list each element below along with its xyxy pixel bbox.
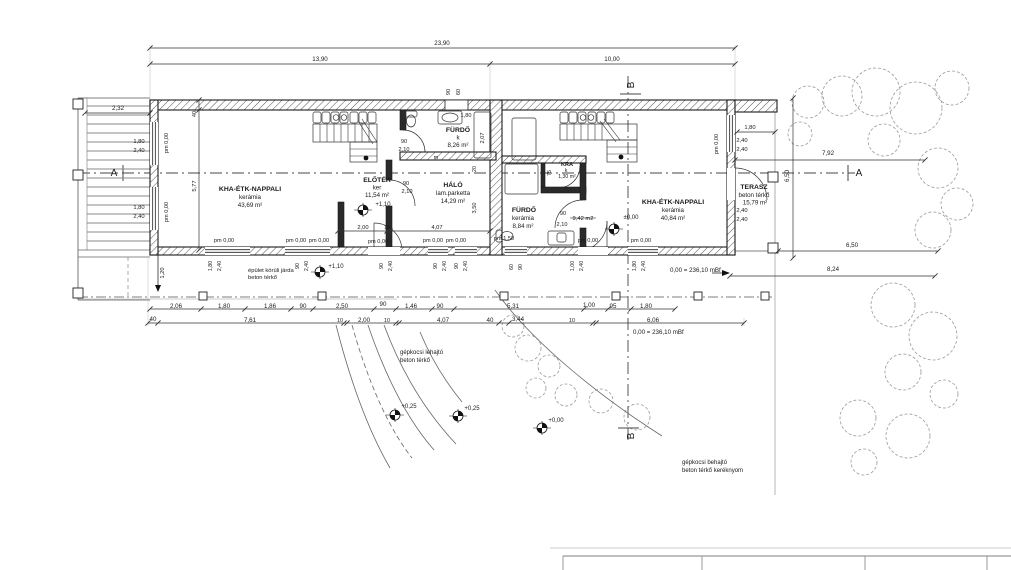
annotation-text: 40 bbox=[192, 111, 198, 117]
annotation-text: 13,90 bbox=[312, 56, 328, 63]
level-marker bbox=[358, 210, 363, 215]
window-opening bbox=[150, 122, 158, 165]
annotation-text: 10 bbox=[384, 318, 390, 324]
tree bbox=[526, 378, 546, 398]
annotation-text: 2,32 bbox=[112, 105, 125, 112]
annotation-text: 15,79 m² bbox=[743, 200, 767, 207]
tree bbox=[941, 188, 973, 220]
annotation-text: 2,10 bbox=[557, 222, 568, 228]
level-marker bbox=[609, 229, 614, 234]
post-square bbox=[768, 172, 778, 182]
fixture bbox=[331, 112, 339, 123]
annotation-text: 90 bbox=[437, 303, 444, 310]
fixture bbox=[578, 112, 586, 123]
annotation-text: 40 bbox=[150, 316, 157, 323]
annotation-text: 4,07 bbox=[437, 317, 450, 324]
stair-flight bbox=[313, 124, 377, 142]
tree bbox=[886, 414, 930, 458]
section-marker-a-right: A bbox=[856, 168, 863, 179]
annotation-text: 2,40 bbox=[736, 208, 747, 214]
room-label-nappali-1: KHA-ÉTK-NAPPALI bbox=[219, 184, 281, 193]
section-marker-b-top: B bbox=[626, 81, 637, 88]
post-square bbox=[73, 288, 83, 298]
stair-start-dot bbox=[364, 156, 369, 161]
annotation-text: k bbox=[456, 135, 460, 142]
annotation-text: 8,84 m² bbox=[513, 223, 534, 230]
annotation-text: 1,80 bbox=[133, 205, 144, 211]
annotation-text: 90 bbox=[454, 263, 460, 269]
tree bbox=[555, 384, 577, 406]
fixture bbox=[442, 113, 458, 122]
annotation-text: 75 bbox=[547, 170, 553, 176]
post-square bbox=[73, 170, 83, 180]
tree bbox=[822, 76, 862, 116]
annotation-text: 90 bbox=[300, 303, 307, 310]
annotation-text: 2,40 bbox=[736, 138, 747, 144]
annotation-text: 9,42 m2 bbox=[573, 216, 594, 222]
annotation-text: 2,40 bbox=[736, 147, 747, 153]
wall bbox=[735, 100, 777, 112]
tree bbox=[792, 86, 824, 118]
tree bbox=[538, 355, 560, 377]
annotation-text: 3,50 bbox=[472, 203, 478, 214]
annotation-text: 95 bbox=[610, 303, 617, 310]
annotation-text: pm 1,50 bbox=[494, 236, 514, 242]
fixture bbox=[606, 112, 614, 123]
window-opening bbox=[727, 115, 735, 152]
tree bbox=[890, 82, 942, 134]
window-opening bbox=[428, 247, 448, 255]
annotation-text: 4,07 bbox=[431, 225, 442, 231]
annotation-text: 90 bbox=[518, 264, 524, 270]
level-marker bbox=[458, 411, 463, 416]
wall bbox=[150, 100, 735, 110]
fixture bbox=[597, 112, 605, 123]
annotation-text: 6,50 bbox=[784, 169, 791, 182]
annotation-text: pm 0,00 bbox=[286, 238, 306, 244]
level-marker bbox=[537, 428, 542, 433]
annotation-text: beton térkő bbox=[739, 192, 771, 199]
tree bbox=[918, 148, 958, 188]
level-marker bbox=[390, 415, 395, 420]
annotation-text: 10 bbox=[384, 225, 390, 231]
plan-path bbox=[336, 325, 390, 468]
annotation-text: 7,92 bbox=[822, 150, 835, 157]
plan-path bbox=[495, 290, 662, 436]
fixture bbox=[512, 118, 536, 160]
plan-path bbox=[420, 332, 462, 402]
tree bbox=[840, 400, 876, 436]
annotation-text: 3,44 bbox=[512, 316, 525, 323]
wall bbox=[541, 163, 545, 187]
annotation-text: pm 0,00 bbox=[631, 238, 651, 244]
fixture bbox=[359, 112, 367, 123]
level-marker bbox=[453, 416, 458, 421]
fixture bbox=[560, 112, 568, 123]
door-opening bbox=[368, 247, 400, 255]
annotation-text: 90 bbox=[560, 211, 566, 217]
section-marker-a-left: A bbox=[111, 168, 118, 179]
annotation-text: 1,80 bbox=[632, 261, 638, 271]
window-opening bbox=[205, 247, 250, 255]
annotation-text: 2,40 bbox=[736, 217, 747, 223]
annotation-text: 90 bbox=[446, 89, 452, 95]
fixture bbox=[569, 112, 577, 123]
annotation-text: 6,06 bbox=[647, 317, 660, 324]
annotation-text: +0,25 bbox=[464, 406, 480, 412]
post-square bbox=[761, 292, 769, 300]
fixture bbox=[405, 111, 417, 117]
stair-flight bbox=[350, 142, 377, 162]
sink-bowl bbox=[341, 115, 347, 121]
window-opening bbox=[285, 247, 330, 255]
note-jarda: épület körüli járda bbox=[248, 268, 295, 274]
stair-flight bbox=[560, 124, 637, 140]
annotation-text: 1,00 bbox=[583, 302, 596, 309]
post-square bbox=[73, 99, 83, 109]
annotation-text: 1,80 bbox=[744, 125, 755, 131]
annotation-text: beton térkő bbox=[248, 275, 277, 281]
annotation-text: 2,40 bbox=[133, 148, 144, 154]
post-square bbox=[694, 292, 702, 300]
sink-bowl bbox=[333, 115, 339, 121]
vent-opening bbox=[445, 100, 468, 110]
tree bbox=[871, 283, 915, 327]
post-square bbox=[612, 292, 620, 300]
annotation-text: lam.parketta bbox=[436, 190, 471, 197]
annotation-text: beton térkő keréknyom bbox=[682, 468, 743, 474]
annotation-text: 90 bbox=[433, 263, 439, 269]
fixture bbox=[505, 164, 538, 194]
post-square bbox=[318, 292, 326, 300]
tree bbox=[868, 124, 900, 156]
annotation-text: kerámia bbox=[239, 194, 262, 201]
floor-plan-canvas: 23,9013,9010,009060BBAA2,321,802,401,802… bbox=[0, 0, 1011, 570]
room-label-terasz: TERASZ bbox=[740, 184, 767, 191]
annotation-text: kerámia bbox=[512, 215, 535, 222]
note-behajto: gépkocsi behajtó bbox=[682, 460, 728, 466]
annotation-text: 10,00 bbox=[604, 56, 620, 63]
annotation-text: 2,40 bbox=[133, 214, 144, 220]
level-marker bbox=[320, 267, 325, 272]
level-marker bbox=[542, 423, 547, 428]
arrowhead bbox=[722, 270, 730, 276]
annotation-text: 10 bbox=[569, 318, 575, 324]
annotation-text: 40 bbox=[487, 317, 494, 324]
level-marker bbox=[315, 272, 320, 277]
annotation-text: +0,25 bbox=[401, 404, 417, 410]
tree bbox=[885, 354, 921, 390]
window-opening bbox=[505, 247, 527, 255]
annotation-text: 1,00 bbox=[570, 261, 576, 271]
fixture bbox=[588, 112, 596, 123]
floor-plan: 23,9013,9010,009060BBAA2,321,802,401,802… bbox=[0, 0, 1011, 570]
fixture bbox=[350, 112, 358, 123]
annotation-text: pm 0,00 bbox=[214, 238, 234, 244]
annotation-text: 8,26 m² bbox=[448, 142, 469, 149]
tree bbox=[589, 389, 613, 413]
annotation-text: +1,10 bbox=[328, 264, 344, 270]
annotation-text: pm 0,00 bbox=[578, 238, 598, 244]
annotation-text: 2,00 bbox=[358, 317, 371, 324]
annotation-text: 14,29 m² bbox=[441, 198, 465, 205]
annotation-text: 1,80 bbox=[218, 303, 231, 310]
sink-bowl bbox=[580, 115, 586, 121]
annotation-text: m bbox=[434, 155, 439, 161]
annotation-text: 1,80 bbox=[133, 139, 144, 145]
annotation-text: 60 bbox=[509, 264, 515, 270]
annotation-text: 1,80 bbox=[208, 261, 214, 271]
room-label-furdo-2: FÜRDŐ bbox=[512, 205, 536, 214]
fixture bbox=[322, 112, 330, 123]
sink-bowl bbox=[588, 115, 594, 121]
annotation-text: pm 0,00 bbox=[164, 202, 170, 222]
stair-start-dot bbox=[619, 155, 624, 160]
annotation-text: 20 bbox=[472, 166, 478, 172]
annotation-text: 1,86 bbox=[264, 303, 277, 310]
annotation-text: 8,24 bbox=[827, 266, 840, 273]
tree bbox=[915, 212, 951, 248]
annotation-text: 60 bbox=[456, 89, 462, 95]
note-lehajto: gépkocsi lehajtó bbox=[400, 350, 444, 356]
annotation-text: pm 0,00 bbox=[714, 134, 720, 154]
plan-path bbox=[384, 325, 456, 444]
annotation-text: 2,10 bbox=[402, 189, 413, 195]
annotation-text: 2,40 bbox=[217, 261, 223, 271]
post-square bbox=[500, 292, 508, 300]
annotation-text: 2,40 bbox=[579, 261, 585, 271]
annotation-text: 2,50 bbox=[336, 303, 349, 310]
annotation-text: 90 bbox=[380, 301, 387, 308]
wall bbox=[502, 156, 586, 163]
level-marker bbox=[614, 224, 619, 229]
annotation-text: 23,90 bbox=[434, 40, 450, 47]
level-marker bbox=[363, 205, 368, 210]
tree bbox=[930, 380, 958, 408]
room-label-halo: HÁLÓ bbox=[443, 180, 462, 189]
annotation-text: 2,10 bbox=[399, 147, 410, 153]
door-opening bbox=[727, 168, 735, 200]
annotation-text: 2,40 bbox=[442, 261, 448, 271]
room-label-furdo-1: FÜRDŐ bbox=[446, 125, 470, 134]
annotation-text: 2,40 bbox=[304, 261, 310, 271]
door-opening bbox=[578, 247, 608, 255]
annotation-text: +1,10 bbox=[375, 202, 391, 208]
annotation-text: 11,54 m² bbox=[365, 192, 389, 199]
annotation-text: 90 bbox=[401, 139, 407, 145]
room-label-nappali-2: KHA-ÉTK-NAPPALI bbox=[642, 197, 704, 206]
annotation-text: 2,06 bbox=[170, 303, 183, 310]
annotation-text: kerámia bbox=[662, 207, 685, 214]
wall bbox=[400, 152, 496, 160]
datum-note-2: 0,00 = 236,10 mBf bbox=[633, 329, 684, 336]
annotation-text: +0,00 bbox=[548, 418, 564, 424]
annotation-text: 90 bbox=[295, 263, 301, 269]
annotation-text: 1,30 m² bbox=[558, 174, 576, 180]
annotation-text: 1,20 bbox=[160, 267, 166, 278]
annotation-text: 90 bbox=[403, 181, 409, 187]
fixture bbox=[557, 233, 566, 242]
annotation-text: 2,40 bbox=[388, 261, 394, 271]
window-opening bbox=[455, 247, 477, 255]
annotation-text: 6,50 bbox=[846, 242, 859, 249]
annotation-text: ±0,00 bbox=[624, 215, 640, 221]
annotation-text: 43,69 m² bbox=[238, 202, 262, 209]
level-marker bbox=[395, 410, 400, 415]
annotation-text: 2,00 bbox=[357, 225, 368, 231]
wall bbox=[580, 163, 586, 200]
datum-note-1: 0,00 = 236,10 mBf bbox=[670, 267, 721, 274]
post-square bbox=[768, 243, 778, 253]
annotation-text: pm 0,00 bbox=[164, 133, 170, 153]
tree bbox=[851, 449, 877, 475]
annotation-text: 2,40 bbox=[463, 261, 469, 271]
annotation-text: 10 bbox=[337, 318, 343, 324]
window-opening bbox=[150, 187, 158, 230]
annotation-text: 7,61 bbox=[244, 317, 257, 324]
tree bbox=[788, 122, 812, 146]
annotation-text: pm 0,00 bbox=[423, 238, 443, 244]
fixture bbox=[368, 112, 376, 123]
wall bbox=[338, 202, 344, 247]
arrowhead bbox=[155, 285, 161, 292]
annotation-text: pm 0,00 bbox=[446, 238, 466, 244]
annotation-text: beton térkő bbox=[400, 358, 431, 364]
wall bbox=[541, 187, 586, 193]
annotation-text: 90 bbox=[379, 263, 385, 269]
section-marker-b-bottom: B bbox=[626, 432, 637, 439]
tree bbox=[909, 312, 957, 360]
window-opening bbox=[628, 247, 658, 255]
annotation-text: 40,84 m² bbox=[661, 215, 685, 222]
annotation-text: 1,80 bbox=[640, 303, 653, 310]
annotation-text: 2,40 bbox=[641, 261, 647, 271]
tree bbox=[935, 71, 969, 105]
fixture bbox=[313, 112, 321, 123]
annotation-text: 2,07 bbox=[480, 133, 486, 144]
post-square bbox=[199, 292, 207, 300]
annotation-text: ker bbox=[373, 185, 382, 192]
annotation-text: pm 0,00 bbox=[368, 239, 388, 245]
annotation-text: 1,80 bbox=[461, 113, 472, 119]
annotation-text: 5,31 bbox=[507, 303, 520, 310]
plan-path bbox=[368, 325, 434, 450]
annotation-text: 5,77 bbox=[192, 180, 198, 191]
annotation-text: pm 0,00 bbox=[309, 238, 329, 244]
plan-path bbox=[352, 325, 412, 458]
room-label-eloter: ELŐTÉR bbox=[363, 175, 391, 184]
annotation-text: 1,46 bbox=[405, 303, 418, 310]
tree bbox=[852, 68, 900, 116]
